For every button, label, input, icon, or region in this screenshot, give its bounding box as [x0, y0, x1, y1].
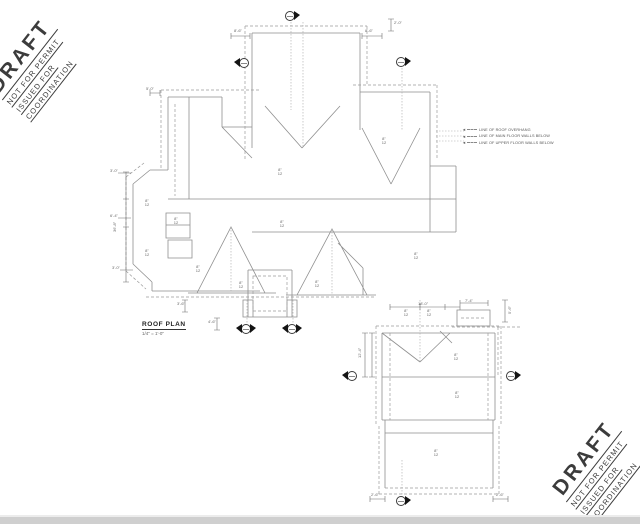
- drawing-title-block: ROOF PLAN 1/4" = 1'-0": [142, 321, 186, 336]
- dimension-label: 3'-6": [177, 302, 185, 306]
- dimension-label: 2'-0": [394, 21, 402, 25]
- section-marker-icon: [396, 57, 406, 67]
- slope-label: 8" 12: [427, 309, 431, 317]
- slope-label: 8" 12: [280, 220, 284, 228]
- section-marker-icon: [506, 371, 516, 381]
- leader-arrow-icon: ◄: [462, 134, 466, 139]
- slope-label: 8" 12: [278, 168, 282, 176]
- dimension-label: 8'-6": [234, 29, 242, 33]
- marker-flag-icon: [342, 371, 348, 380]
- drawing-scale: 1/4" = 1'-0": [142, 331, 186, 336]
- section-marker-icon: [347, 371, 357, 381]
- section-marker-icon: [241, 324, 251, 334]
- dimension-label: 8'-6": [365, 29, 373, 33]
- leader-arrow-icon: ◄: [462, 140, 466, 145]
- slope-label: 8" 12: [454, 353, 458, 361]
- dimension-label: 3'-0": [110, 169, 118, 173]
- drawing-sheet: DRAFT NOT FOR PERMIT ISSUED FOR COORDINA…: [0, 0, 640, 524]
- marker-flag-icon: [294, 11, 300, 20]
- section-marker-icon: [285, 11, 295, 21]
- roof-outline-solid: [133, 33, 495, 488]
- roof-plan-drawing: [0, 0, 640, 524]
- marker-flag-icon: [234, 58, 240, 67]
- dimension-label: 36'-8": [113, 222, 117, 232]
- dimension-label: 5'-0": [146, 87, 154, 91]
- slope-label: 8" 12: [315, 280, 319, 288]
- section-marker-icon: [396, 496, 406, 506]
- line-sample-icon: [467, 129, 477, 130]
- dimension-label: 5'-6": [508, 306, 512, 314]
- slope-label: 8" 12: [455, 391, 459, 399]
- marker-flag-icon: [405, 57, 411, 66]
- page-edge-strip: [0, 517, 640, 524]
- slope-label: 8" 12: [174, 217, 178, 225]
- dimension-label: 7'-4": [465, 299, 473, 303]
- section-marker-icon: [287, 324, 297, 334]
- dimension-label: 12'-4": [358, 348, 362, 358]
- slope-label: 8" 12: [145, 199, 149, 207]
- slope-label: 8" 12: [196, 265, 200, 273]
- slope-label: 8" 12: [382, 137, 386, 145]
- dimension-ticks: [118, 19, 508, 502]
- legend-item-roof-overhang: ◄ LINE OF ROOF OVERHANG: [462, 127, 554, 132]
- legend-item-main-floor-walls: ◄ LINE OF MAIN FLOOR WALLS BELOW: [462, 134, 554, 139]
- slope-label: 8" 12: [239, 281, 243, 289]
- dimension-label: 2'-6": [371, 493, 379, 497]
- drawing-title: ROOF PLAN: [142, 321, 186, 330]
- dimension-label: 4'-6": [208, 320, 216, 324]
- leader-arrow-icon: ◄: [462, 127, 466, 132]
- legend-item-upper-floor-walls: ◄ LINE OF UPPER FLOOR WALLS BELOW: [462, 140, 554, 145]
- slope-label: 8" 12: [404, 309, 408, 317]
- marker-flag-icon: [236, 324, 242, 333]
- marker-flag-icon: [515, 371, 521, 380]
- line-legend: ◄ LINE OF ROOF OVERHANG ◄ LINE OF MAIN F…: [462, 127, 554, 147]
- marker-flag-icon: [282, 324, 288, 333]
- dimension-label: 6'-4": [110, 214, 118, 218]
- slope-label: 8" 12: [414, 252, 418, 260]
- slope-label: 8" 12: [145, 249, 149, 257]
- section-marker-icon: [239, 58, 249, 68]
- line-sample-icon: [467, 142, 477, 143]
- slope-label: 8" 12: [434, 449, 438, 457]
- marker-flag-icon: [405, 496, 411, 505]
- marker-flag-icon: [250, 324, 256, 333]
- dimension-label: 3'-0": [112, 266, 120, 270]
- dimension-label: 18'-0": [418, 302, 428, 306]
- line-sample-icon: [467, 136, 477, 137]
- overhang-walls-dashed: [126, 22, 520, 497]
- marker-flag-icon: [296, 324, 302, 333]
- dimension-label: 2'-6": [496, 493, 504, 497]
